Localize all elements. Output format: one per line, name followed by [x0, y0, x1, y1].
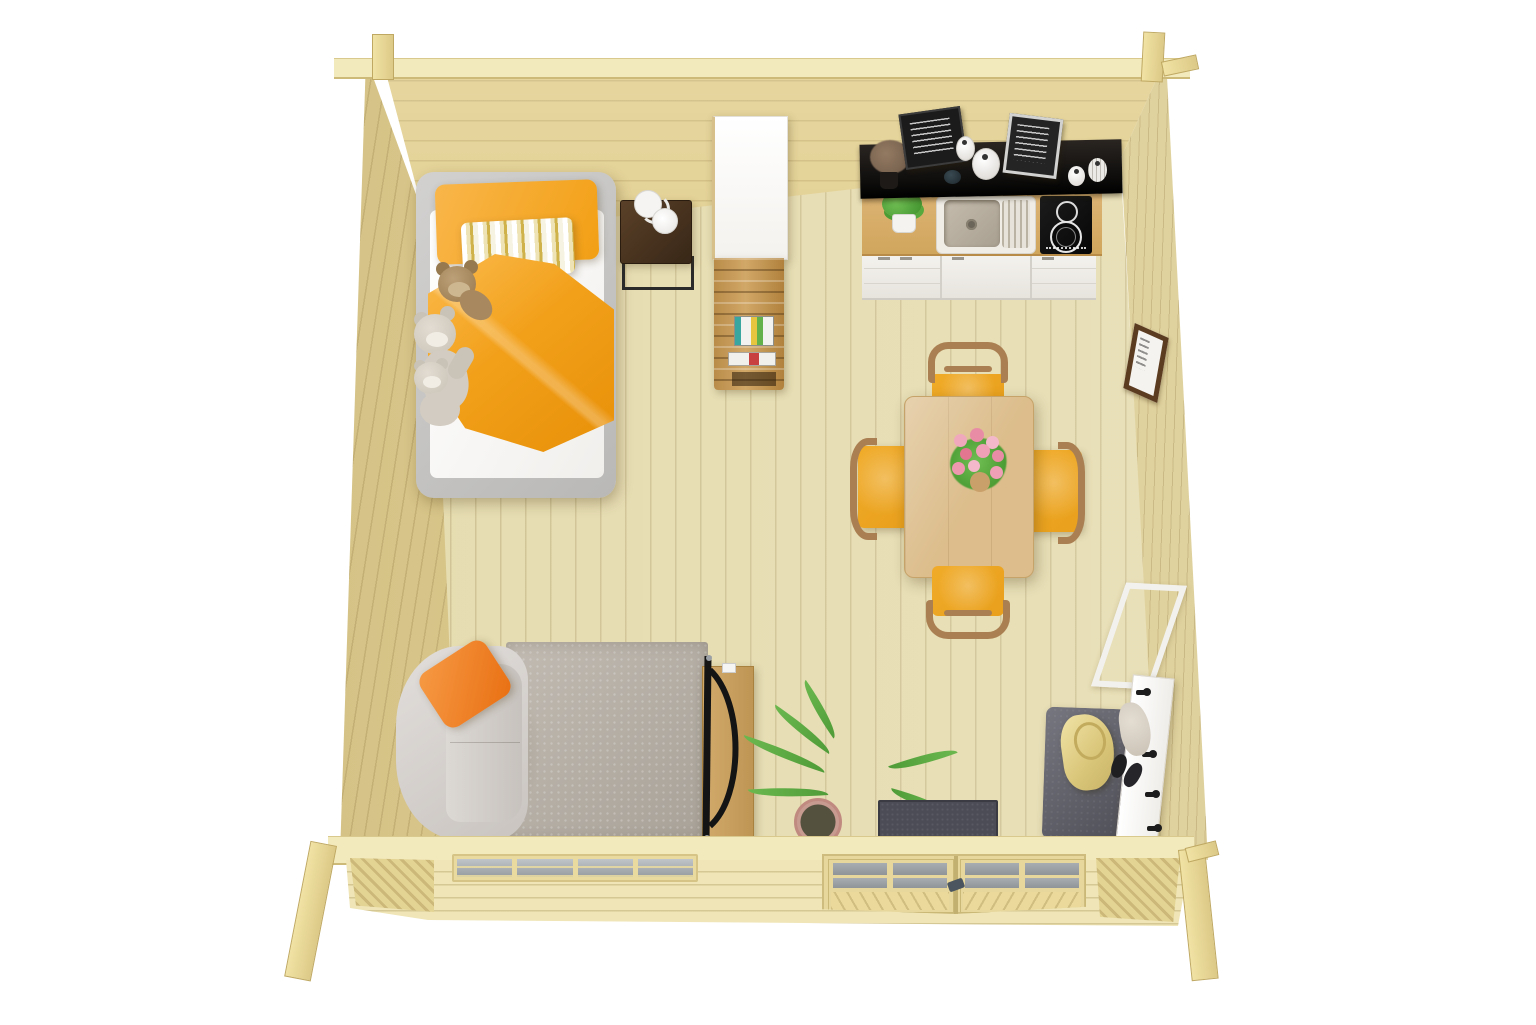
rose [976, 444, 990, 458]
lamp-shade [652, 208, 678, 234]
picture-art [1135, 337, 1150, 371]
bottom-right-corner-post [1178, 847, 1219, 981]
teddy-bear-small [410, 358, 468, 432]
dark-bowl [944, 170, 961, 184]
cabinet-divider [940, 252, 942, 298]
chalk-text [910, 118, 954, 157]
door-pane [965, 863, 1019, 875]
rose [954, 434, 967, 447]
hob-burner-small [1056, 201, 1078, 223]
door-lower-panel [963, 892, 1081, 910]
cabin-top-view-render [0, 0, 1536, 1025]
teddy-body [420, 392, 460, 426]
drawer-line [1032, 283, 1096, 284]
chalk-text [1013, 124, 1049, 164]
drawer-handle [878, 257, 890, 260]
sink-drainer [1002, 200, 1030, 248]
dining-chair-left-back [850, 438, 877, 540]
drawer-line [864, 268, 940, 269]
door-pane [893, 878, 947, 888]
chair-back-slat [944, 366, 992, 372]
double-door [822, 854, 1086, 914]
chalkboard-sign-right [1003, 113, 1064, 179]
dining-chair-right-back [1058, 442, 1085, 544]
drawer-line [864, 283, 940, 284]
drawer-line [1032, 268, 1096, 269]
vase-neck-dot [982, 154, 988, 160]
floor-plant [746, 700, 896, 845]
window-pane [457, 859, 512, 877]
window-pane [638, 859, 693, 877]
door-pane [1025, 878, 1079, 888]
coat-hook [1147, 826, 1160, 831]
bouquet-vase [970, 472, 990, 492]
tv [696, 650, 752, 844]
dried-flower-pot [880, 172, 898, 189]
vase-white [972, 148, 1000, 180]
hob-controls [1046, 247, 1086, 249]
shelf-books-color [734, 316, 774, 346]
table-lamp [630, 186, 682, 236]
door-lower-panel [831, 892, 949, 910]
coat-hook [1136, 690, 1149, 695]
door-pane [833, 878, 887, 888]
top-right-corner-post [1141, 31, 1166, 82]
drawer-handle [1042, 257, 1054, 260]
coat-hook [1145, 792, 1158, 797]
door-leaf [960, 859, 1086, 913]
teddy-muzzle [423, 376, 441, 388]
dining-chair-bottom-back [926, 600, 1010, 639]
bottom-left-corner-joint [350, 858, 434, 912]
chair-back-slat [944, 610, 992, 616]
rose [970, 428, 984, 442]
bottom-right-corner-joint [1096, 858, 1180, 922]
rose-bouquet [946, 428, 1012, 500]
bottom-left-corner-post [284, 841, 337, 982]
window-pane [517, 859, 572, 877]
door-pane [833, 863, 887, 875]
top-left-corner-post [372, 34, 394, 80]
kitchen-cabinets [862, 252, 1096, 300]
plant-pot [892, 214, 916, 233]
door-leaf [828, 859, 954, 913]
window [452, 854, 698, 882]
sofa-seat-seam [450, 742, 520, 743]
wardrobe-top [712, 116, 788, 260]
shelf-slot [732, 372, 776, 386]
shelf-books-red [728, 352, 776, 366]
door-pane [893, 863, 947, 875]
window-pane [578, 859, 633, 877]
rose [960, 448, 972, 460]
chalkboard-sign-left [898, 106, 967, 170]
vase-neck-dot [1095, 161, 1100, 166]
cabinet-divider [1030, 252, 1032, 298]
drawer-handle [952, 257, 964, 260]
rose [952, 462, 965, 475]
drawer-handle [900, 257, 912, 260]
teddy-muzzle [426, 332, 448, 347]
dining-chair-top-back [928, 342, 1008, 383]
vase-neck-dot [962, 140, 967, 145]
rose [968, 460, 980, 472]
rose [990, 466, 1003, 479]
vase-neck-dot [1074, 169, 1079, 174]
door-pane [965, 878, 1019, 888]
top-wall-beam [334, 58, 1190, 79]
door-pane [1025, 863, 1079, 875]
sink-drain-icon [966, 219, 977, 230]
rose [992, 450, 1004, 462]
